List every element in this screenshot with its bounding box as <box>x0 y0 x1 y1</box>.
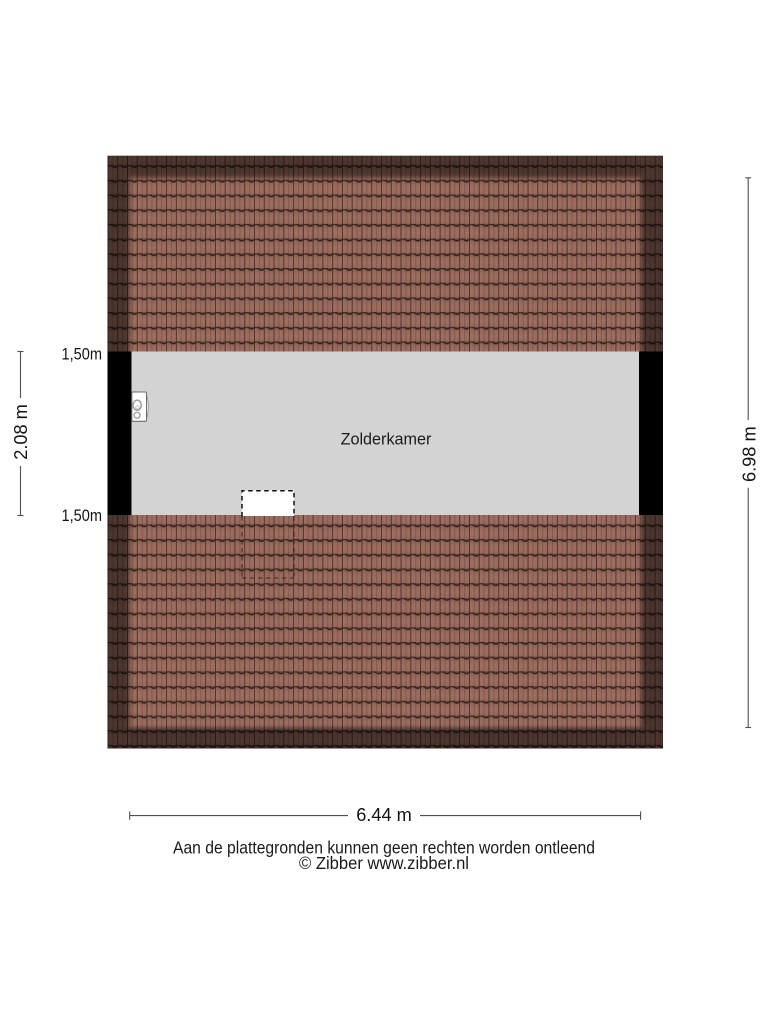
svg-text:2.08 m: 2.08 m <box>11 404 31 460</box>
svg-text:6.98 m: 6.98 m <box>739 426 759 482</box>
svg-text:6.44 m: 6.44 m <box>356 805 412 825</box>
svg-text:Zolderkamer: Zolderkamer <box>341 431 432 449</box>
svg-text:1,50m: 1,50m <box>62 345 103 364</box>
svg-text:1,50m: 1,50m <box>62 506 103 525</box>
svg-text:© Zibber www.zibber.nl: © Zibber www.zibber.nl <box>299 853 469 873</box>
